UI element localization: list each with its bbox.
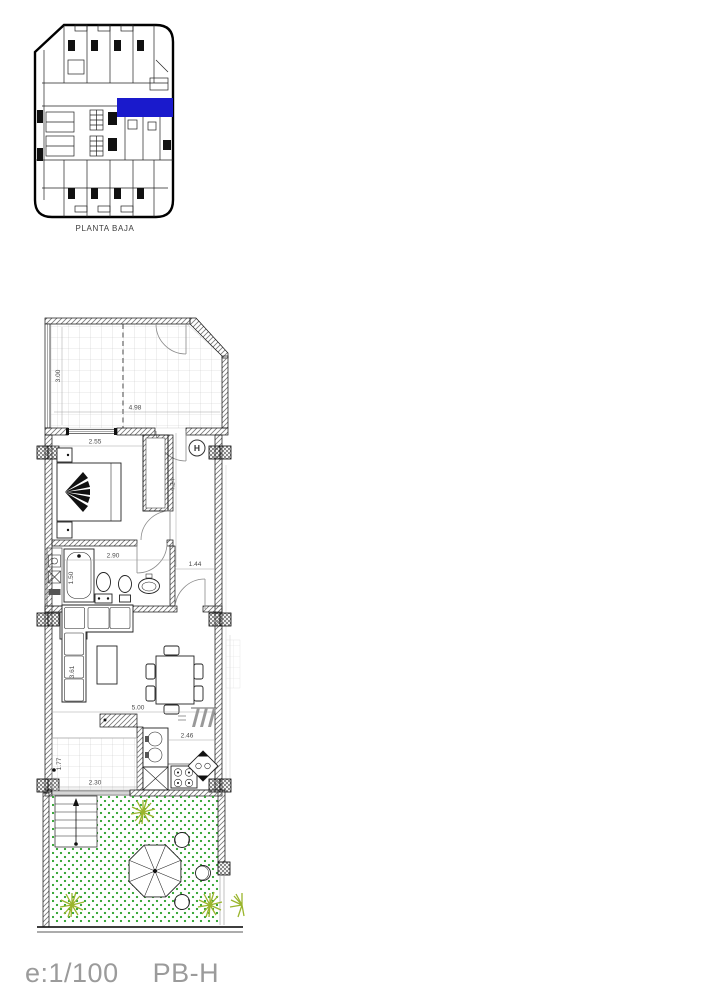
dining-chair	[194, 664, 203, 679]
dim-bathroom-depth: 1.50	[68, 571, 75, 584]
scale-label: e:1/100	[25, 958, 119, 988]
washbasin	[139, 574, 160, 594]
dining-chair	[164, 646, 179, 655]
apartment-plan: 3.00 4.98	[35, 315, 245, 940]
terrace: 3.00 4.98	[45, 318, 228, 428]
highlighted-unit	[117, 98, 173, 117]
dining-chair	[146, 686, 155, 701]
toilet	[95, 573, 112, 604]
dining-table	[156, 656, 194, 704]
bedroom-door	[141, 511, 170, 540]
garden-chair	[196, 866, 211, 881]
key-plan	[30, 20, 180, 225]
coffee-table	[97, 646, 117, 684]
left-wall	[45, 435, 52, 790]
bidet	[119, 576, 132, 603]
dim-living-width: 5.00	[132, 705, 145, 712]
footer: e:1/100PB-H	[25, 958, 219, 989]
dim-corridor-width: 1.44	[189, 561, 202, 568]
ac-unit-symbol	[178, 708, 217, 727]
bedroom: 2.55	[52, 435, 173, 540]
dining-set	[146, 646, 203, 714]
dim-bedroom-width: 2.55	[89, 439, 102, 446]
plan-code-label: PB-H	[153, 958, 220, 988]
parasol	[129, 845, 181, 897]
key-plan-caption: PLANTA BAJA	[30, 224, 180, 233]
bed	[57, 463, 121, 521]
right-wall	[215, 435, 222, 790]
dim-terrace-depth: 3.00	[55, 369, 62, 382]
dim-living-depth: 3.61	[69, 665, 76, 678]
entrance-hall: H 4.24 1.44	[170, 433, 216, 569]
living-room-door	[175, 579, 205, 609]
kitchen-sink	[143, 728, 168, 790]
bathroom: 2.90 1.50	[45, 540, 222, 612]
bathroom-door	[137, 543, 167, 573]
nightstand	[57, 448, 72, 462]
garden-chair	[175, 895, 190, 910]
living-room: 5.00 3.61	[52, 605, 217, 727]
garden-chair	[175, 832, 190, 847]
hall-label: H	[194, 443, 200, 453]
floor-plan-sheet: PLANTA BAJA	[0, 0, 706, 1000]
patio: 1.77 2.30	[52, 738, 137, 790]
dining-chair	[164, 705, 179, 714]
garden	[37, 790, 244, 932]
terrace-floor-tiles	[51, 324, 222, 428]
dining-chair	[194, 686, 203, 701]
wardrobe	[143, 435, 168, 511]
dim-patio-width: 2.30	[89, 780, 102, 787]
dim-patio-depth: 1.77	[56, 757, 63, 770]
plant	[230, 893, 244, 917]
dim-kitchen-width: 2.46	[181, 733, 194, 740]
dim-bathroom-width: 2.90	[107, 553, 120, 560]
staircase	[55, 796, 97, 847]
dim-terrace-width: 4.98	[129, 405, 142, 412]
dining-chair	[146, 664, 155, 679]
dim-hall-length: 4.24	[170, 478, 177, 491]
nightstand	[57, 522, 72, 538]
